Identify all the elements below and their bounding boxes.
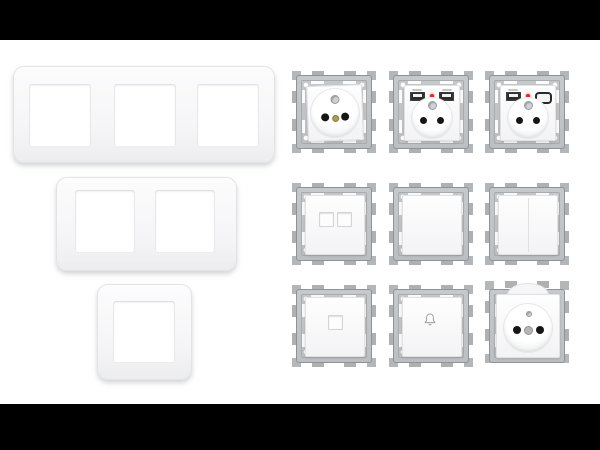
socket-faceplate [496, 294, 560, 358]
socket-hole [516, 117, 523, 124]
rj45-port [337, 212, 352, 227]
earth-pin [330, 95, 339, 104]
letterbox-bottom [0, 404, 600, 450]
module-double-switch [485, 183, 569, 265]
socket-faceplate [306, 84, 364, 142]
double-gang-frame-plate [56, 177, 237, 271]
usb-marking [442, 89, 452, 91]
socket-hole [420, 117, 427, 124]
earth-pin [524, 101, 533, 110]
triple-gang-frame-plate [13, 66, 275, 163]
outlet-faceplate [305, 297, 365, 357]
earth-pin [526, 311, 532, 317]
center-screw [524, 326, 533, 335]
plate-window [114, 84, 176, 147]
rj45-port [328, 315, 343, 330]
socket-well [411, 97, 453, 139]
outlet-faceplate [305, 195, 365, 255]
switch-rocker-split [498, 195, 558, 255]
socket-faceplate [500, 85, 556, 141]
push-button-face [402, 297, 462, 357]
earth-pin [428, 101, 437, 110]
usb-marking [508, 89, 518, 91]
module-socket-usb-a-c [485, 71, 569, 153]
module-single-switch [389, 183, 473, 265]
bell-icon [422, 312, 438, 328]
product-photo [0, 0, 600, 450]
socket-hole [341, 113, 349, 121]
module-socket-with-lid [485, 281, 569, 363]
center-screw [332, 115, 339, 122]
module-dual-rj45 [292, 183, 376, 265]
socket-faceplate [404, 85, 460, 141]
module-french-socket [292, 71, 376, 153]
socket-hole [321, 113, 329, 121]
module-single-rj45 [292, 285, 376, 367]
module-socket-dual-usb-a [389, 71, 473, 153]
switch-rocker [402, 195, 462, 255]
usb-marking [412, 89, 422, 91]
plate-window [197, 84, 259, 147]
socket-hole [533, 117, 540, 124]
rj45-port [319, 212, 334, 227]
socket-well [309, 87, 361, 139]
plate-window [75, 190, 135, 253]
plate-window [155, 190, 215, 253]
socket-well [507, 97, 549, 139]
plate-window [29, 84, 91, 147]
socket-well [503, 303, 553, 353]
rocker-divider [528, 198, 529, 252]
single-gang-frame-plate [97, 284, 192, 380]
socket-hole [536, 326, 544, 334]
socket-hole [513, 326, 521, 334]
letterbox-top [0, 0, 600, 40]
plate-window [113, 301, 175, 363]
module-doorbell-button [389, 285, 473, 367]
socket-hole [437, 117, 444, 124]
